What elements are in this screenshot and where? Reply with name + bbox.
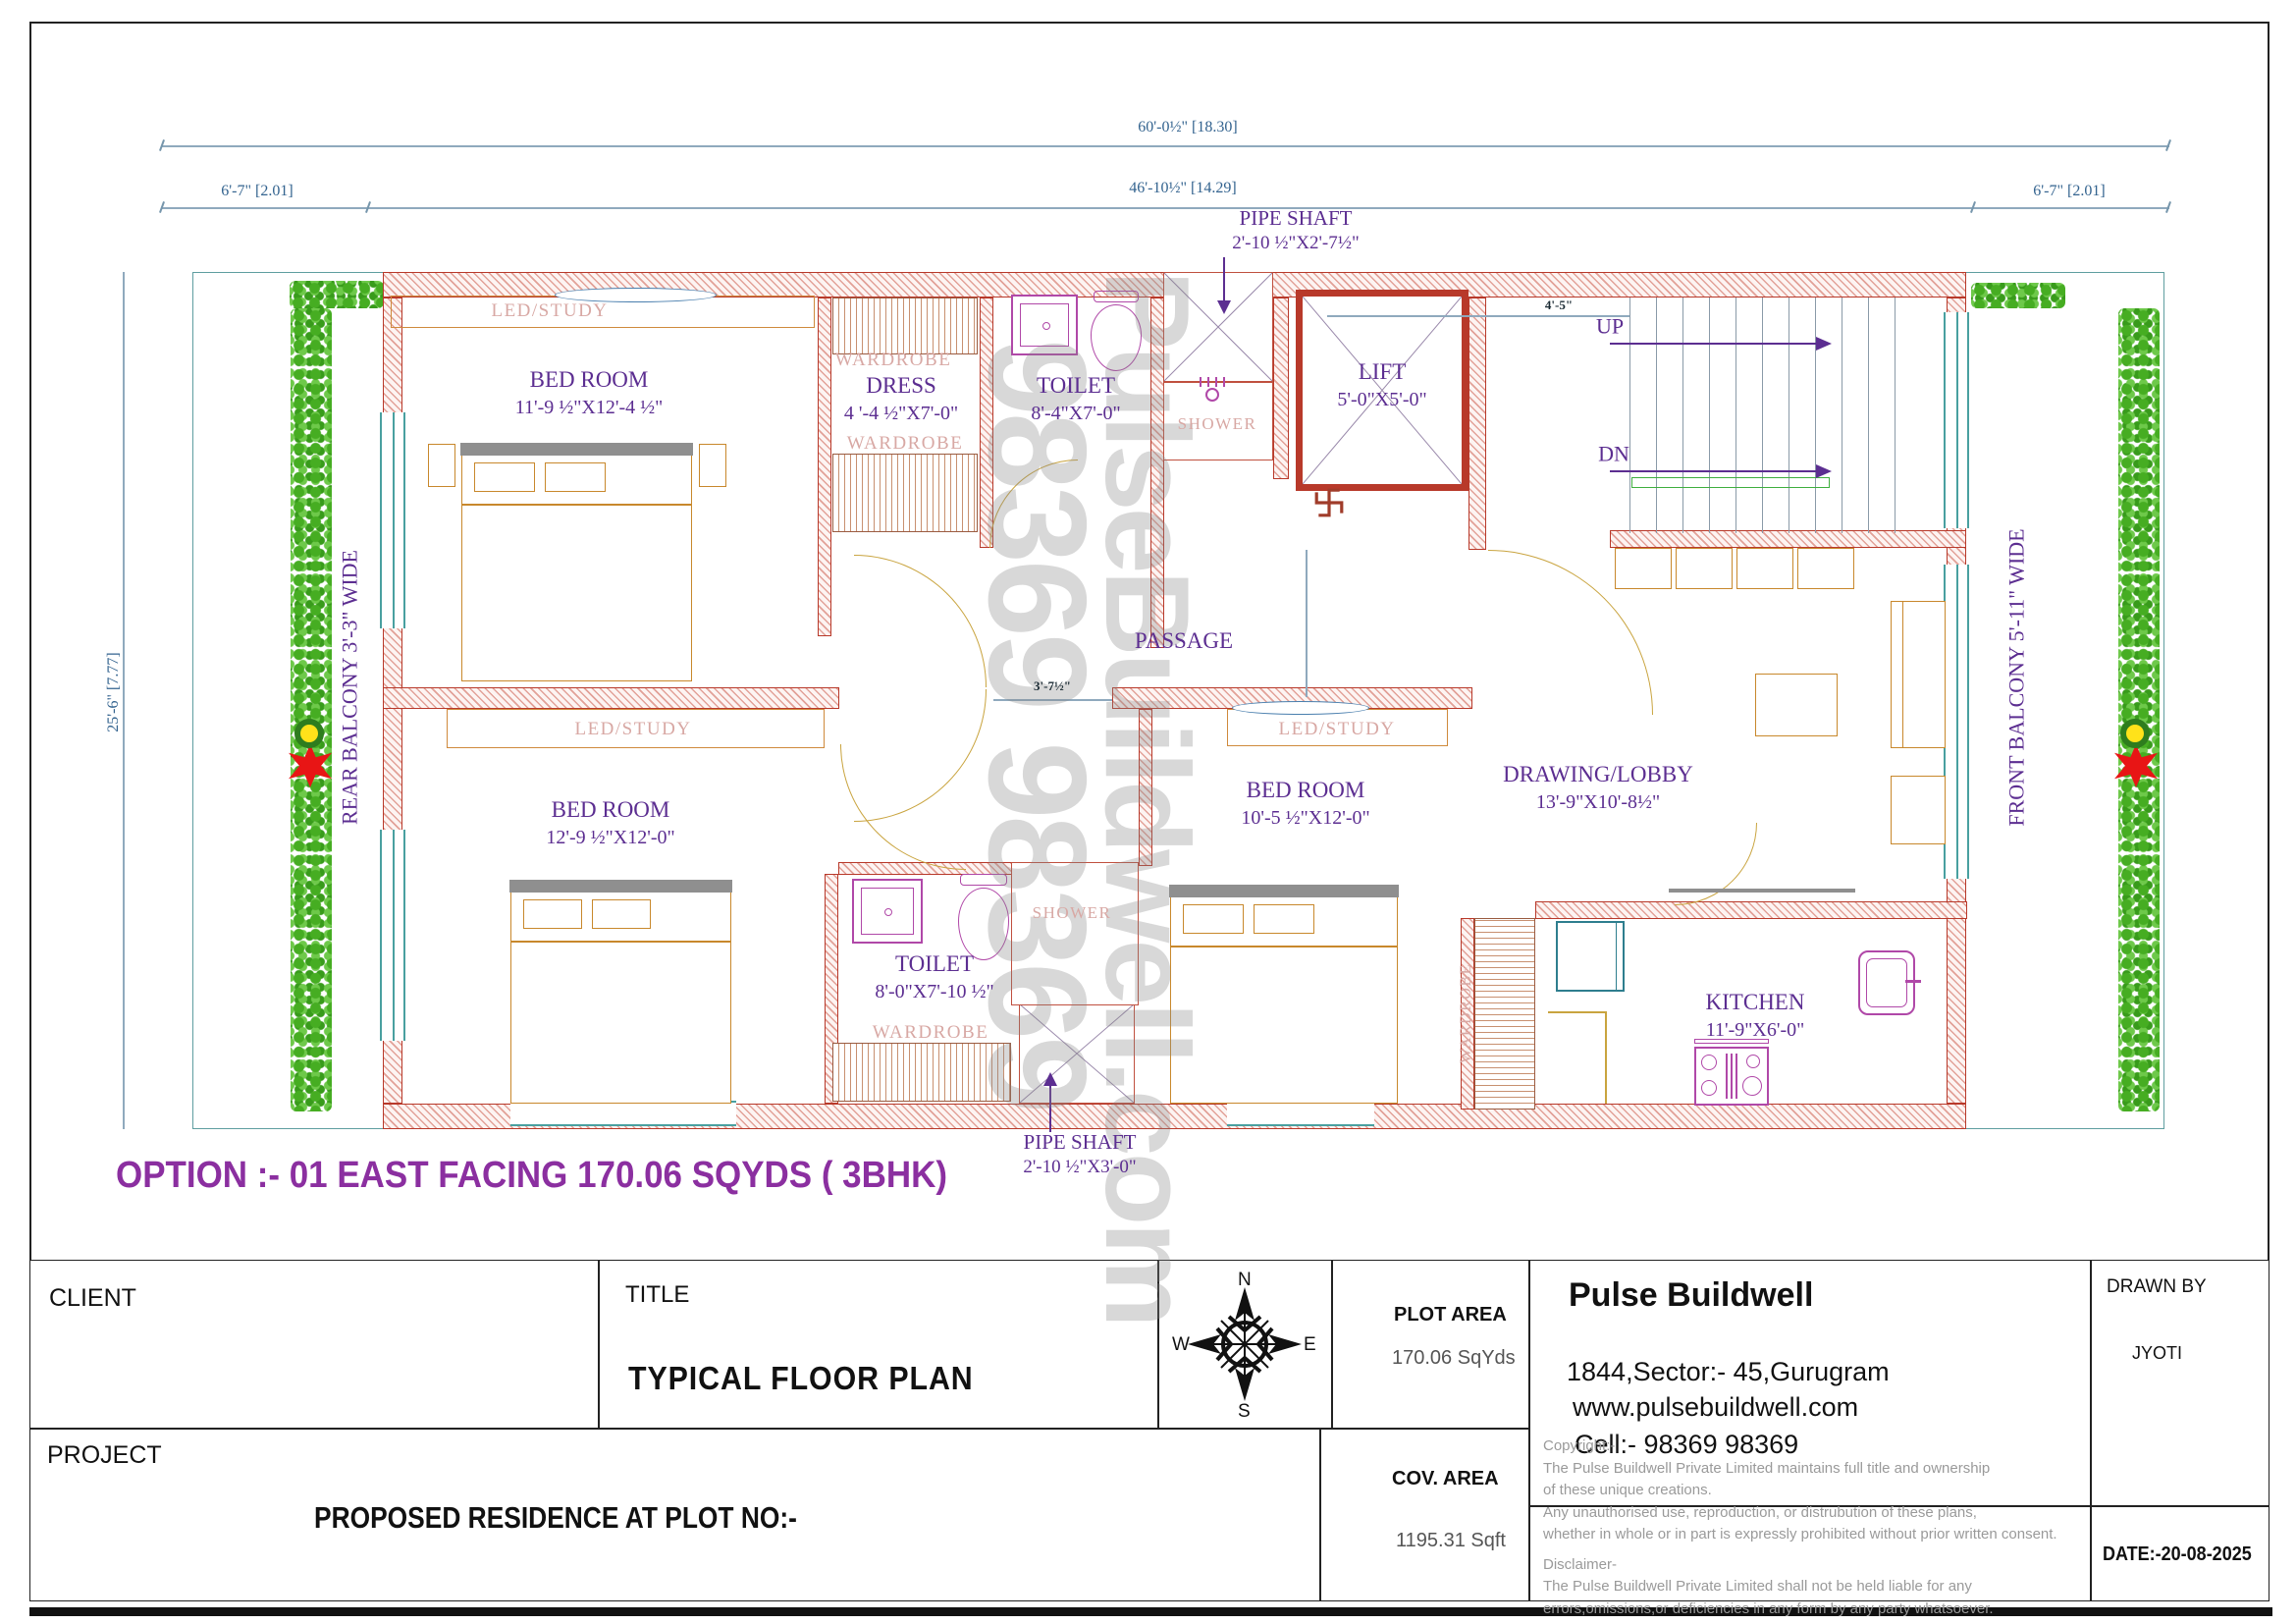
pipe-shaft-top-label: PIPE SHAFT 2'-10 ½"X2'-7½" — [1232, 205, 1359, 256]
table — [1755, 674, 1838, 736]
room-size: 11'-9"X6'-0" — [1706, 1017, 1805, 1043]
room-name: BED ROOM — [1241, 776, 1369, 805]
shower-label: SHOWER — [1033, 903, 1112, 923]
ceiling-light — [1232, 701, 1369, 715]
stove — [1694, 1047, 1769, 1106]
hedge-front-top — [1971, 283, 2065, 308]
led-study-label: LED/STUDY — [574, 719, 691, 740]
cov-area-value: 1195.31 Sqft — [1396, 1530, 1506, 1552]
bed — [461, 444, 692, 681]
plot-area-label: PLOT AREA — [1394, 1304, 1507, 1326]
project-label: PROJECT — [47, 1441, 162, 1470]
project-value: PROPOSED RESIDENCE AT PLOT NO:- — [314, 1500, 797, 1536]
dim-left-label: 6'-7" [2.01] — [218, 183, 295, 200]
copyright-line: of these unique creations. — [1543, 1480, 2081, 1502]
room-name: BED ROOM — [546, 795, 674, 825]
dim-total-label: 60'-0½" [18.30] — [1135, 119, 1240, 136]
shower-label: SHOWER — [1178, 414, 1257, 434]
dim-line-vert — [1306, 550, 1308, 697]
room-size: 2'-10 ½"X2'-7½" — [1232, 232, 1359, 256]
dim-stair-label: 4'-5" — [1545, 298, 1573, 313]
room-size: 2'-10 ½"X3'-0" — [1023, 1156, 1136, 1180]
compass-n: N — [1238, 1270, 1252, 1291]
kitchen-sink — [1858, 950, 1915, 1015]
hedge-rear — [291, 308, 332, 1111]
tv-unit — [1736, 548, 1793, 589]
leader-line — [1223, 257, 1225, 302]
room-name: KITCHEN — [1706, 988, 1805, 1017]
bedroom3-label: BED ROOM 10'-5 ½"X12'-0" — [1241, 776, 1369, 831]
window — [1944, 312, 1969, 528]
tv-unit — [1676, 548, 1733, 589]
stairs — [1629, 298, 1906, 533]
compass-e: E — [1304, 1334, 1316, 1356]
copyright-line: The Pulse Buildwell Private Limited shal… — [1543, 1576, 2081, 1598]
window — [380, 412, 405, 628]
compass-w: W — [1172, 1334, 1190, 1356]
stairs-dn-label: DN — [1598, 441, 1629, 469]
dim-inner-label: 46'-10½" [14.29] — [1126, 180, 1239, 197]
date-value: DATE:-20-08-2025 — [2103, 1543, 2252, 1566]
room-size: 11'-9 ½"X12'-4 ½" — [515, 395, 664, 420]
copyright-line: Disclaimer- — [1543, 1554, 2081, 1577]
company-address: 1844,Sector:- 45,Gurugram — [1567, 1357, 1890, 1387]
company-name: Pulse Buildwell — [1569, 1276, 1813, 1315]
room-size: 4 '-4 ½"X7'-0" — [844, 401, 958, 426]
wall — [1535, 901, 1967, 919]
sofa-seat — [1891, 776, 1946, 844]
room-name: TOILET — [1031, 371, 1120, 401]
compass-s: S — [1238, 1401, 1251, 1423]
cov-area-label: COV. AREA — [1392, 1468, 1499, 1490]
room-size: 8'-4"X7'-0" — [1031, 401, 1120, 426]
wardrobe-strip — [1474, 918, 1535, 1110]
sofa — [1891, 601, 1946, 748]
room-name: TOILET — [875, 949, 993, 979]
window — [1227, 1101, 1374, 1126]
drawing-lobby-label: DRAWING/LOBBY 13'-9"X10'-8½" — [1503, 760, 1693, 815]
nightstand — [699, 444, 726, 487]
hedge-rear-top — [290, 281, 384, 308]
room-name: PIPE SHAFT — [1232, 205, 1359, 232]
copyright-line: Any unauthorised use, reproduction, or d… — [1543, 1502, 2081, 1525]
wardrobe-strip — [832, 454, 978, 532]
wardrobe-label: WARDROBE — [873, 1022, 989, 1044]
plot-area-cell — [1332, 1260, 1529, 1429]
wardrobe-label: WARDROBE — [847, 433, 964, 455]
wall — [818, 298, 831, 636]
passage-label: PASSAGE — [1135, 626, 1233, 656]
tv-unit — [1615, 548, 1672, 589]
dn-arrow-head — [1816, 464, 1832, 478]
room-size: 8'-0"X7'-10 ½" — [875, 979, 993, 1004]
wall — [1468, 298, 1486, 550]
room-name: DRAWING/LOBBY — [1503, 760, 1693, 789]
swastika-icon — [1313, 487, 1345, 518]
bedroom1-label: BED ROOM 11'-9 ½"X12'-4 ½" — [515, 365, 664, 420]
dress-label: DRESS 4 '-4 ½"X7'-0" — [844, 371, 958, 426]
up-arrow-head — [1816, 337, 1832, 351]
copyright-line: The Pulse Buildwell Private Limited main… — [1543, 1458, 2081, 1481]
sill-line — [1669, 889, 1855, 893]
up-arrow — [1610, 343, 1818, 345]
cov-area-cell — [1320, 1429, 1529, 1601]
sink — [852, 879, 923, 944]
room-size: 5'-0"X5'-0" — [1337, 387, 1426, 412]
dn-arrow — [1610, 470, 1818, 472]
led-study-label: LED/STUDY — [491, 300, 608, 322]
counter-line — [1605, 1011, 1607, 1104]
nightstand — [428, 444, 455, 487]
copyright-text: Copyright:- The Pulse Buildwell Private … — [1543, 1435, 2081, 1620]
dim-line-stair — [1327, 315, 1629, 317]
wardrobe-strip — [832, 298, 978, 354]
wardrobe-label: WARDROBE — [835, 350, 952, 371]
dim-line-total — [162, 145, 2169, 147]
window — [510, 1101, 736, 1126]
bed — [510, 881, 731, 1104]
room-size: 10'-5 ½"X12'-0" — [1241, 805, 1369, 831]
window — [1944, 565, 1969, 879]
bedroom2-label: BED ROOM 12'-9 ½"X12'-0" — [546, 795, 674, 850]
drawn-by-value: JYOTI — [2132, 1343, 2182, 1364]
plot-area-value: 170.06 SqYds — [1392, 1347, 1516, 1370]
wall — [383, 687, 839, 709]
pipe-shaft-bottom-label: PIPE SHAFT 2'-10 ½"X3'-0" — [1023, 1129, 1136, 1180]
drawn-by-label: DRAWN BY — [2107, 1276, 2207, 1298]
counter-line — [1548, 1011, 1607, 1013]
title-label: TITLE — [625, 1281, 689, 1309]
room-name: BED ROOM — [515, 365, 664, 395]
room-name: DRESS — [844, 371, 958, 401]
led-study-label: LED/STUDY — [1278, 719, 1395, 740]
wardrobe-label: WARDROBE — [1458, 963, 1475, 1063]
option-title: OPTION :- 01 EAST FACING 170.06 SQYDS ( … — [116, 1155, 947, 1197]
copyright-line: whether in whole or in part is expressly… — [1543, 1524, 2081, 1546]
room-size: 13'-9"X10'-8½" — [1503, 789, 1693, 815]
company-website: www.pulsebuildwell.com — [1573, 1392, 1858, 1423]
room-name: PIPE SHAFT — [1023, 1129, 1136, 1156]
toilet1-label: TOILET 8'-4"X7'-0" — [1031, 371, 1120, 426]
window — [380, 830, 405, 1041]
copyright-line: errors,omissions,or deficiencies in any … — [1543, 1598, 2081, 1621]
rear-balcony-label: REAR BALCONY 3'-3" WIDE — [337, 550, 365, 825]
flower-front — [2109, 719, 2171, 795]
lift-label: LIFT 5'-0"X5'-0" — [1337, 357, 1426, 412]
dim-passage-label: 3'-7½" — [1034, 678, 1071, 694]
tv-unit — [1797, 548, 1854, 589]
dim-right-label: 6'-7" [2.01] — [2030, 183, 2108, 200]
client-label: CLIENT — [49, 1284, 136, 1313]
stairs-up-label: UP — [1596, 313, 1624, 342]
fridge — [1556, 921, 1625, 992]
wall — [1273, 298, 1289, 479]
toilet2-label: TOILET 8'-0"X7'-10 ½" — [875, 949, 993, 1004]
front-balcony-label: FRONT BALCONY 5'-11" WIDE — [2003, 528, 2032, 826]
room-name: LIFT — [1337, 357, 1426, 387]
dim-line-inner — [162, 207, 2169, 209]
kitchen-label: KITCHEN 11'-9"X6'-0" — [1706, 988, 1805, 1043]
copyright-line: Copyright:- — [1543, 1435, 2081, 1458]
floor-plan-sheet: { "dims": { "total": "60'-0½\" [18.30]",… — [0, 0, 2296, 1624]
dim-line-height — [123, 272, 125, 1129]
stairs-landing-rail — [1631, 477, 1830, 488]
leader-arrow — [1217, 300, 1231, 314]
dim-height-label: 25'-6" [7.77] — [105, 649, 123, 734]
drawing-title: TYPICAL FLOOR PLAN — [628, 1360, 974, 1397]
hedge-front — [2118, 308, 2160, 1111]
room-size: 12'-9 ½"X12'-0" — [546, 825, 674, 850]
